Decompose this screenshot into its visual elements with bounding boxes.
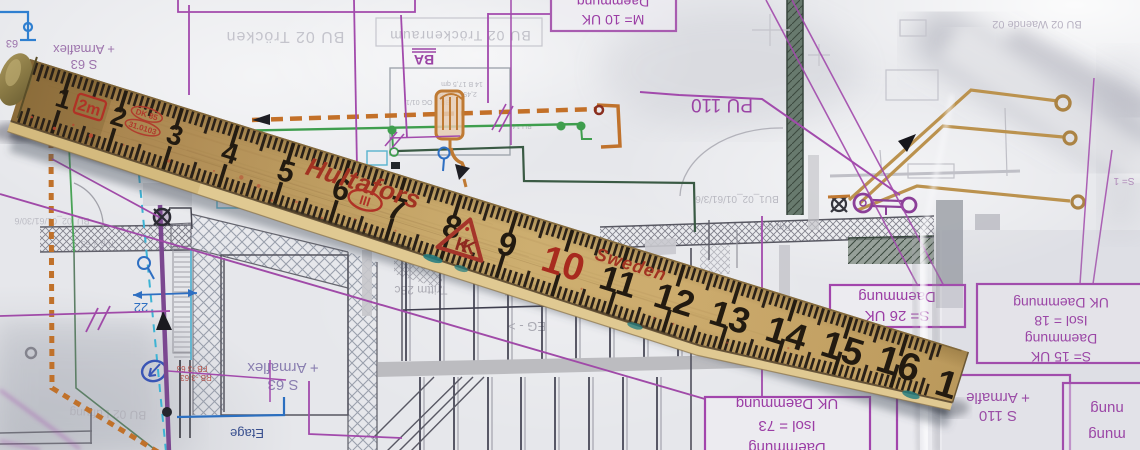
svg-text:Daemmung: Daemmung [748, 439, 826, 450]
svg-text:14 B 17,5 qm: 14 B 17,5 qm [441, 80, 483, 87]
svg-text:Etage: Etage [230, 426, 264, 441]
svg-text:BA: BA [414, 52, 434, 68]
svg-text:S 63: S 63 [71, 57, 98, 72]
svg-text:BU 02 Lüftung: BU 02 Lüftung [69, 406, 146, 423]
svg-text:+ Armaflex: + Armaflex [53, 42, 115, 57]
svg-text:BU 02 Tröcken: BU 02 Tröcken [226, 28, 345, 45]
svg-text:BU1_02_01/61/3/6: BU1_02_01/61/3/6 [695, 193, 779, 204]
svg-text:UK Daemmung: UK Daemmung [736, 395, 839, 412]
svg-text:+ Armaflex: + Armaflex [247, 359, 319, 376]
svg-text:BU 02 Waende 02: BU 02 Waende 02 [992, 18, 1081, 30]
svg-text:S= 26 UK: S= 26 UK [865, 307, 930, 324]
svg-text:Isol = 73: Isol = 73 [758, 417, 815, 434]
svg-text:EG - >: EG - > [508, 319, 546, 334]
svg-text:PU 110: PU 110 [691, 94, 753, 115]
svg-text:BU 02 Tröckenraum: BU 02 Tröckenraum [389, 28, 531, 44]
svg-text:63: 63 [6, 37, 18, 49]
svg-text:Daemmung: Daemmung [577, 0, 649, 10]
svg-text:S= 1: S= 1 [1113, 175, 1134, 186]
svg-text:M= 10 UK: M= 10 UK [581, 12, 644, 28]
